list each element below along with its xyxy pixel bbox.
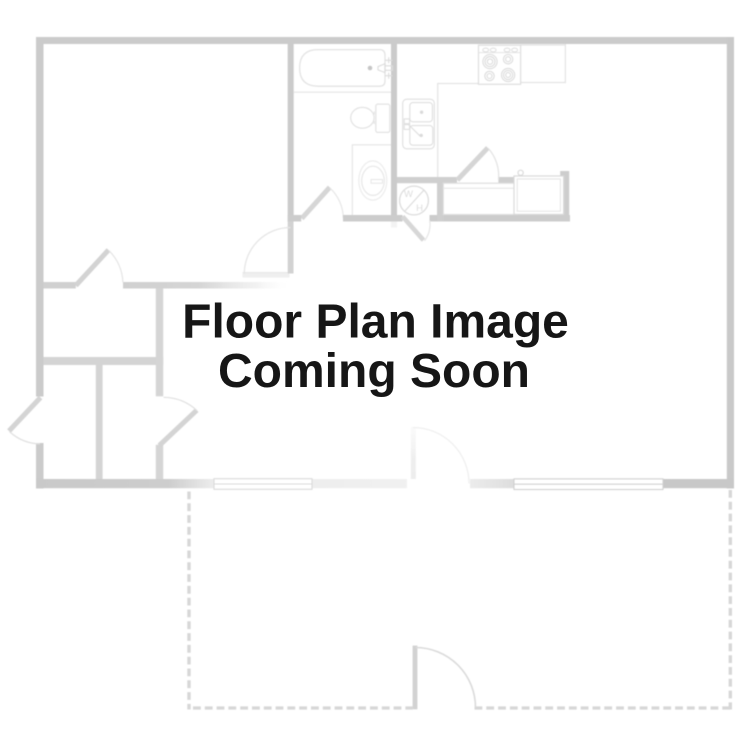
svg-text:W: W: [404, 189, 413, 200]
svg-text:Floor Plan Image: Floor Plan Image: [182, 296, 569, 349]
svg-text:Coming Soon: Coming Soon: [218, 345, 530, 398]
svg-text:H: H: [416, 203, 423, 214]
